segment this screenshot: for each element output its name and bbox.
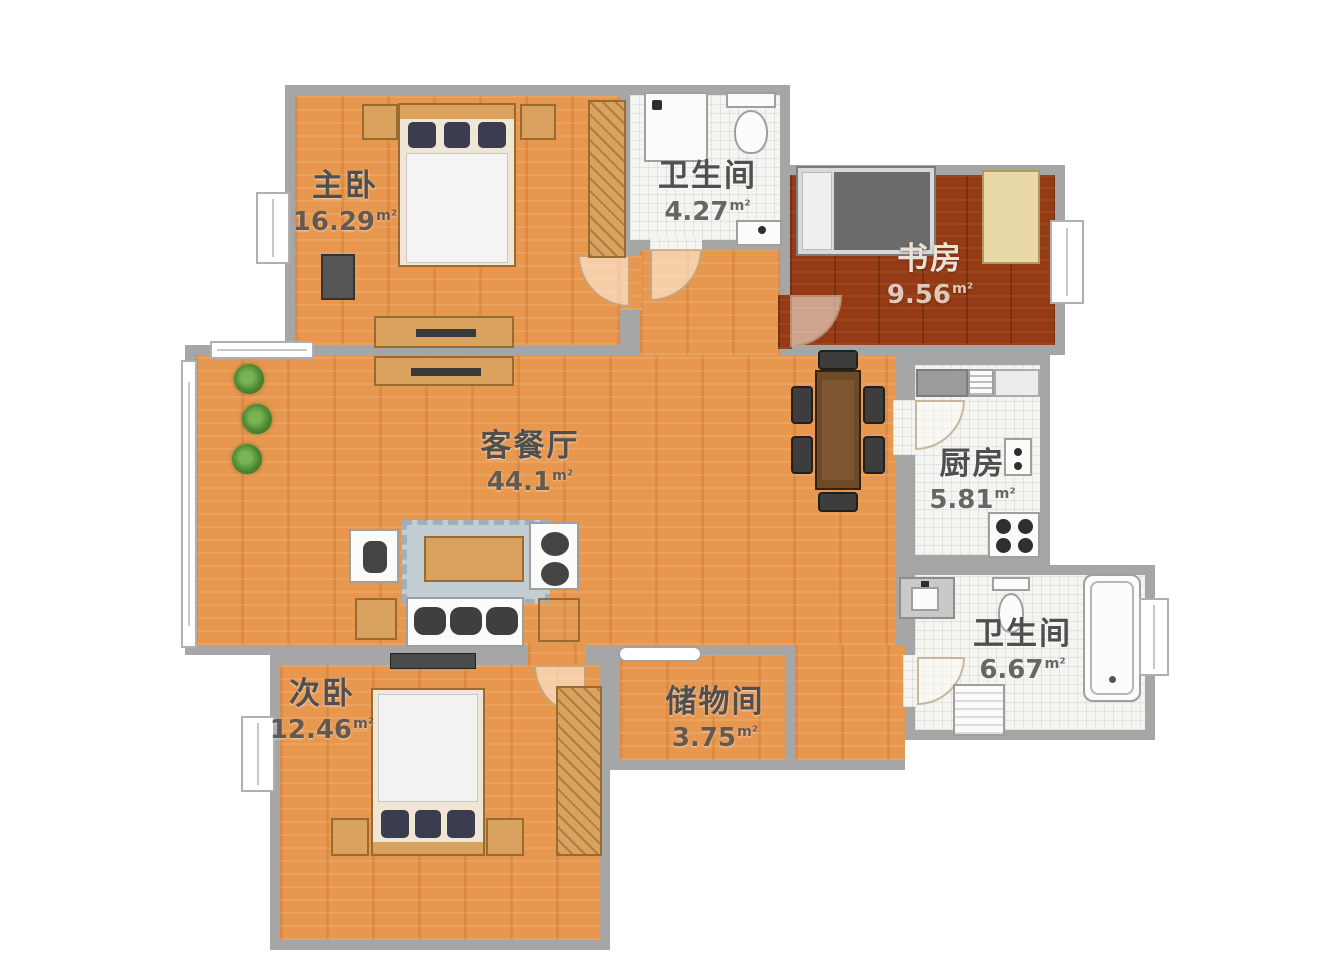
corridor: [785, 645, 905, 770]
master-bed: [398, 103, 516, 267]
dining-table-top: [822, 380, 854, 480]
second-bedroom-door-opening: [528, 643, 586, 667]
second-bed-pillow: [447, 810, 475, 838]
armchair-right: [529, 522, 579, 590]
dining-chair: [863, 436, 885, 474]
master-bed-pillow: [444, 122, 470, 148]
label-living-dining: 客餐厅 44.1m²: [455, 420, 605, 497]
burner: [1018, 538, 1033, 553]
master-dresser: [374, 316, 514, 348]
washing-machine: [953, 684, 1005, 736]
plant: [234, 364, 264, 394]
bath-bottom-door-opening: [903, 655, 917, 707]
armchair-cushion: [541, 562, 569, 586]
second-bed-pillow: [381, 810, 409, 838]
toilet-tank: [726, 92, 776, 108]
basin: [911, 587, 939, 611]
shower-drain: [652, 100, 662, 110]
label-master-bedroom: 主卧 16.29m²: [285, 160, 405, 237]
second-nightstand-left: [331, 818, 369, 856]
side-table-right: [538, 598, 580, 642]
plant: [232, 444, 262, 474]
kitchen-counter: [916, 369, 968, 397]
master-bed-pillow: [408, 122, 436, 148]
tv-cabinet: [374, 356, 514, 386]
side-table-left: [355, 598, 397, 640]
master-wardrobe: [588, 100, 626, 258]
dining-chair: [791, 386, 813, 424]
master-desk: [321, 254, 355, 300]
tv-unit: [411, 368, 481, 376]
label-bath-bottom: 卫生间 6.67m²: [945, 608, 1100, 685]
burner: [996, 538, 1011, 553]
master-bed-duvet: [406, 153, 508, 263]
sofa: [406, 597, 524, 647]
living-left-window: [181, 360, 197, 648]
kitchen-sink: [968, 369, 994, 397]
dining-chair: [818, 350, 858, 370]
dining-chair: [863, 386, 885, 424]
burner: [996, 519, 1011, 534]
sofa-cushion: [486, 607, 518, 635]
label-storage: 储物间 3.75m²: [640, 676, 790, 753]
armchair-cushion: [541, 532, 569, 556]
second-bed: [371, 688, 485, 856]
floor-plan: 主卧 16.29m² 卫生间 4.27m² 书房 9.56m² 客餐厅 44.1…: [0, 0, 1333, 958]
storage-sliding-door: [618, 646, 702, 662]
toilet-tank: [992, 577, 1030, 591]
master-nightstand-right: [520, 104, 556, 140]
plant: [242, 404, 272, 434]
label-study: 书房 9.56m²: [855, 233, 1005, 310]
dining-chair: [791, 436, 813, 474]
armchair-cushion: [363, 541, 387, 573]
second-bed-duvet: [378, 694, 478, 802]
coffee-table: [424, 536, 524, 582]
label-bath-top: 卫生间 4.27m²: [630, 150, 785, 227]
toilet-top: [726, 92, 776, 158]
stove: [988, 512, 1040, 558]
master-bed-pillow: [478, 122, 506, 148]
dining-chair: [818, 492, 858, 512]
armchair-left: [349, 529, 399, 583]
label-second-bedroom: 次卧 12.46m²: [262, 668, 382, 745]
living-top-window: [210, 341, 314, 359]
study-bed-pillow: [802, 172, 832, 250]
toilet-bowl: [734, 110, 768, 154]
sofa-cushion: [450, 607, 482, 635]
second-bed-headboard: [373, 842, 483, 854]
second-bedroom-tv: [390, 653, 476, 669]
master-bed-headboard: [400, 105, 514, 119]
drain: [1109, 676, 1116, 683]
faucet: [758, 226, 766, 234]
dresser-handle: [416, 329, 476, 337]
master-nightstand-left: [362, 104, 398, 140]
second-bed-pillow: [415, 810, 441, 838]
dining-table: [815, 370, 861, 490]
bath-bottom-window: [1139, 598, 1169, 676]
study-window: [1050, 220, 1084, 304]
second-nightstand-right: [486, 818, 524, 856]
label-kitchen: 厨房 5.81m²: [905, 438, 1040, 515]
faucet: [921, 581, 929, 587]
second-wardrobe: [556, 686, 602, 856]
burner: [1018, 519, 1033, 534]
sofa-cushion: [414, 607, 446, 635]
kitchen-counter-2: [994, 369, 1040, 397]
